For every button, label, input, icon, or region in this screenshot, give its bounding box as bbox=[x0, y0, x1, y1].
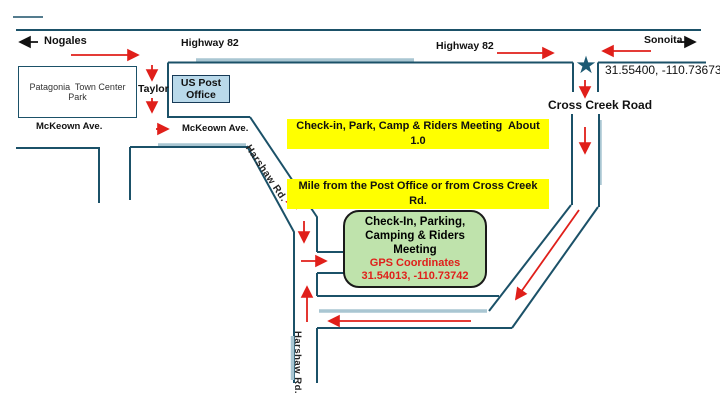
mckeown-ave-road bbox=[16, 145, 247, 203]
junction-star-icon: ★ bbox=[572, 54, 600, 78]
sonoita-label: Sonoita bbox=[644, 35, 683, 47]
direction-map: Nogales Highway 82 Highway 82 Sonoita Pa… bbox=[0, 0, 720, 405]
mckeown-ave-left-label: McKeown Ave. bbox=[36, 122, 102, 132]
patagonia-town-center-park-box: Patagonia Town Center Park bbox=[18, 66, 137, 118]
taylor-street-label: Taylor bbox=[138, 84, 169, 96]
post-office-label-line1: US Post bbox=[181, 77, 221, 89]
park-label-line2: Park bbox=[68, 92, 87, 102]
checkin-box-line2: Camping & Riders bbox=[365, 229, 465, 243]
checkin-box-line3: Meeting bbox=[393, 243, 436, 257]
checkin-parking-camping-box: Check-In, Parking, Camping & Riders Meet… bbox=[343, 210, 487, 288]
note-line1: Check-in, Park, Camp & Riders Meeting Ab… bbox=[287, 119, 549, 149]
checkin-box-line1: Check-In, Parking, bbox=[365, 215, 465, 229]
checkin-gps-value: 31.54013, -110.73742 bbox=[361, 270, 468, 283]
post-office-label-line2: Office bbox=[186, 89, 216, 101]
checkin-gps-title: GPS Coordinates bbox=[370, 257, 460, 270]
highway-82-right-label: Highway 82 bbox=[436, 41, 494, 53]
note-line2: Mile from the Post Office or from Cross … bbox=[287, 179, 549, 209]
mckeown-ave-right-label: McKeown Ave. bbox=[182, 124, 248, 134]
cross-creek-road bbox=[572, 63, 600, 208]
nogales-label: Nogales bbox=[44, 35, 87, 47]
harshaw-rd-vertical-label: Harshaw Rd. bbox=[292, 331, 303, 394]
park-label-line1: Patagonia Town Center bbox=[30, 82, 126, 92]
us-post-office-box: US Post Office bbox=[172, 75, 230, 103]
highway-82-left-label: Highway 82 bbox=[181, 38, 239, 50]
junction-gps-coordinates: 31.55400, -110.73673 bbox=[605, 64, 720, 77]
cross-creek-road-label: Cross Creek Road bbox=[548, 99, 652, 112]
